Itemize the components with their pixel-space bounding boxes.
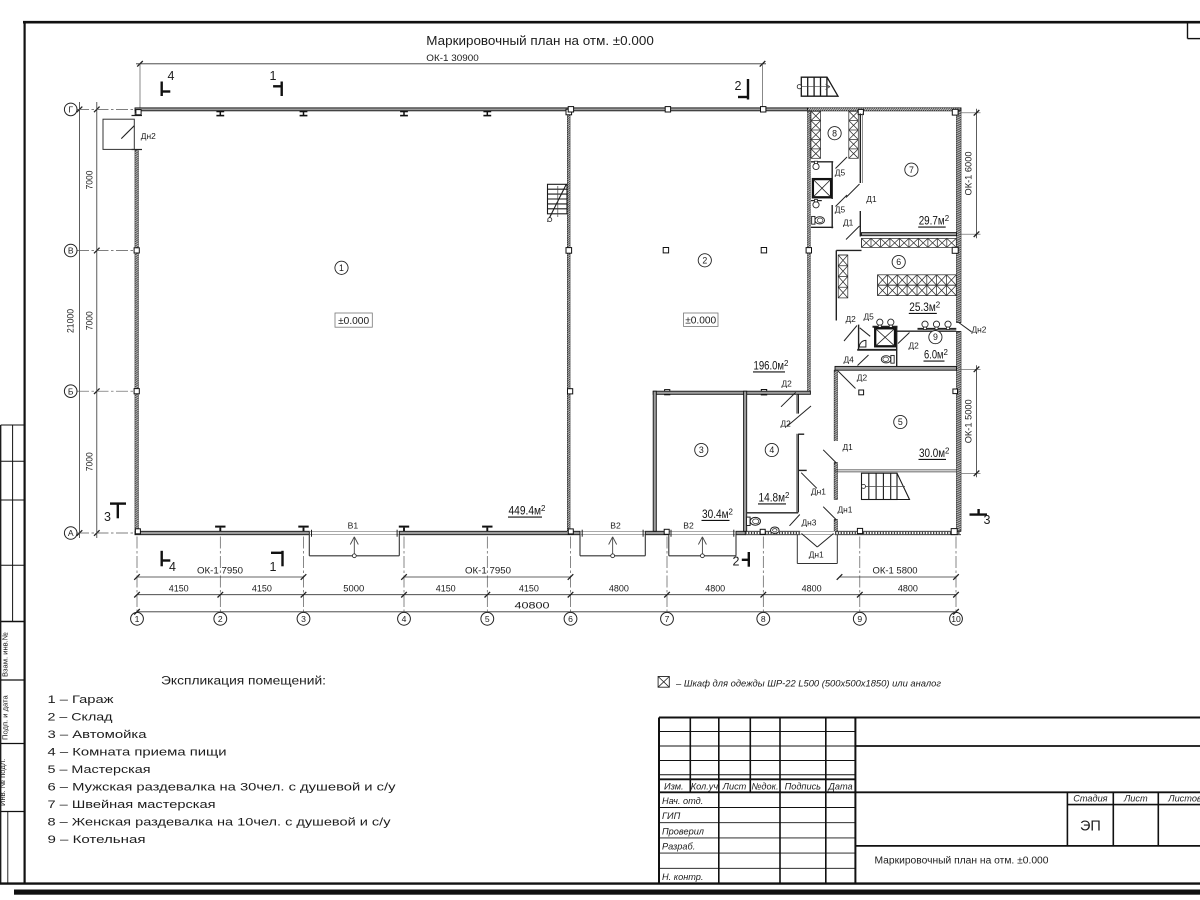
svg-text:2: 2: [702, 255, 707, 265]
svg-text:Дата: Дата: [827, 782, 852, 792]
svg-text:4: 4: [769, 445, 774, 455]
svg-text:В: В: [68, 246, 74, 256]
svg-text:Д2: Д2: [781, 419, 792, 429]
svg-text:7: 7: [909, 165, 914, 175]
svg-text:5: 5: [898, 417, 903, 427]
svg-text:ОК-1 30900: ОК-1 30900: [426, 53, 479, 63]
svg-text:Дн2: Дн2: [972, 325, 987, 335]
svg-text:Взам. инв.№: Взам. инв.№: [0, 632, 9, 677]
svg-text:2: 2: [218, 614, 223, 624]
svg-text:Лист: Лист: [1123, 794, 1148, 804]
svg-text:Разраб.: Разраб.: [662, 842, 695, 852]
svg-text:4800: 4800: [609, 584, 629, 595]
svg-text:30.0м: 30.0м: [919, 446, 945, 460]
svg-text:3: 3: [984, 513, 991, 527]
svg-text:Н. контр.: Н. контр.: [662, 872, 703, 882]
svg-text:2 – Склад: 2 – Склад: [48, 712, 114, 724]
svg-text:8: 8: [761, 614, 766, 624]
svg-text:ЭП: ЭП: [1080, 819, 1101, 835]
svg-text:8: 8: [832, 128, 837, 138]
svg-text:ОК-1 5000: ОК-1 5000: [964, 399, 974, 443]
svg-text:Д2: Д2: [782, 379, 793, 389]
svg-text:5 – Мастерская: 5 – Мастерская: [48, 764, 151, 776]
svg-text:9: 9: [933, 332, 938, 342]
svg-text:В1: В1: [348, 520, 359, 530]
svg-text:Листов: Листов: [1167, 794, 1200, 804]
svg-text:Проверил: Проверил: [662, 826, 704, 836]
svg-text:Маркировочный план на отм. ±0.: Маркировочный план на отм. ±0.000: [875, 856, 1049, 867]
svg-text:А: А: [68, 528, 74, 538]
svg-text:В2: В2: [683, 520, 694, 530]
svg-text:4150: 4150: [519, 584, 539, 595]
svg-text:25.3м: 25.3м: [909, 300, 936, 314]
svg-text:196.0м: 196.0м: [754, 358, 785, 372]
svg-text:8 – Женская раздевалка на 10че: 8 – Женская раздевалка на 10чел. с душев…: [48, 817, 392, 829]
svg-text:– Шкаф для одежды ШР-22 L500 (: – Шкаф для одежды ШР-22 L500 (500x500x18…: [675, 679, 941, 689]
svg-text:9: 9: [857, 614, 862, 624]
svg-text:ОК-1 7950: ОК-1 7950: [197, 566, 243, 576]
svg-text:7000: 7000: [85, 452, 95, 471]
svg-text:Дн3: Дн3: [802, 518, 817, 528]
svg-text:ОК-1 5800: ОК-1 5800: [873, 566, 918, 576]
svg-text:6 – Мужская раздевалка на 30че: 6 – Мужская раздевалка на 30чел. с душев…: [48, 782, 397, 794]
svg-text:4800: 4800: [898, 584, 918, 595]
svg-text:Д5: Д5: [835, 168, 846, 178]
svg-text:4: 4: [169, 560, 176, 574]
svg-text:2: 2: [784, 359, 788, 368]
svg-text:Подп. и дата: Подп. и дата: [0, 694, 9, 740]
svg-text:3 – Автомойка: 3 – Автомойка: [48, 729, 148, 741]
svg-text:4: 4: [402, 614, 407, 624]
svg-text:Д4: Д4: [844, 355, 855, 365]
svg-text:6.0м: 6.0м: [924, 348, 944, 362]
svg-text:7000: 7000: [85, 171, 95, 190]
svg-text:3: 3: [699, 445, 704, 455]
svg-text:2: 2: [945, 446, 949, 455]
svg-text:Д5: Д5: [864, 312, 875, 322]
svg-text:±0.000: ±0.000: [338, 316, 369, 327]
svg-text:29.7м: 29.7м: [919, 214, 945, 228]
svg-text:4150: 4150: [169, 584, 189, 595]
svg-text:1: 1: [339, 263, 344, 273]
svg-text:4150: 4150: [252, 584, 272, 595]
svg-text:1 – Гараж: 1 – Гараж: [48, 694, 115, 706]
svg-text:ГИП: ГИП: [662, 811, 681, 821]
svg-text:5000: 5000: [343, 584, 364, 595]
svg-text:2: 2: [735, 79, 742, 93]
svg-text:7000: 7000: [85, 311, 95, 330]
svg-text:Д1: Д1: [843, 218, 854, 228]
svg-text:Нач. отд.: Нач. отд.: [662, 796, 703, 806]
svg-text:2: 2: [733, 555, 740, 569]
svg-text:Инв. № подл.: Инв. № подл.: [0, 759, 7, 806]
svg-text:Д2: Д2: [857, 373, 868, 383]
svg-text:10: 10: [951, 614, 961, 624]
svg-text:449.4м: 449.4м: [509, 504, 542, 518]
svg-text:30.4м: 30.4м: [702, 507, 729, 521]
svg-text:Д1: Д1: [843, 442, 854, 452]
svg-text:7: 7: [665, 614, 670, 624]
svg-text:Д2: Д2: [909, 341, 920, 351]
svg-text:Д1: Д1: [866, 194, 877, 204]
svg-text:2: 2: [729, 507, 733, 516]
svg-text:4 – Комната приема пищи: 4 – Комната приема пищи: [48, 747, 227, 759]
svg-text:В2: В2: [610, 520, 621, 530]
svg-text:Маркировочный план на отм. ±0.: Маркировочный план на отм. ±0.000: [426, 33, 654, 48]
svg-text:±0.000: ±0.000: [685, 316, 716, 327]
svg-text:3: 3: [104, 510, 111, 524]
svg-text:4800: 4800: [802, 584, 822, 595]
svg-text:4150: 4150: [436, 584, 456, 595]
svg-text:14.8м: 14.8м: [759, 490, 786, 504]
svg-text:4800: 4800: [705, 584, 725, 595]
svg-text:7 – Швейная мастерская: 7 – Швейная мастерская: [48, 799, 216, 811]
svg-text:Экспликация помещений:: Экспликация помещений:: [161, 674, 326, 688]
svg-text:2: 2: [541, 504, 545, 513]
svg-text:2: 2: [785, 491, 789, 500]
svg-text:6: 6: [896, 257, 901, 267]
svg-text:9 – Котельная: 9 – Котельная: [48, 834, 146, 846]
svg-text:Д5: Д5: [835, 205, 846, 215]
svg-text:Б: Б: [68, 386, 74, 396]
svg-text:Изм.: Изм.: [664, 782, 684, 792]
svg-text:Подпись: Подпись: [785, 782, 822, 792]
svg-text:5: 5: [485, 614, 490, 624]
svg-text:40800: 40800: [515, 600, 550, 611]
svg-text:ОК-1 6000: ОК-1 6000: [964, 152, 974, 196]
svg-text:4: 4: [168, 69, 175, 83]
svg-text:Лист: Лист: [722, 782, 747, 792]
svg-text:2: 2: [936, 300, 940, 309]
svg-text:3: 3: [301, 614, 306, 624]
svg-text:Д2: Д2: [846, 314, 857, 324]
svg-text:№док.: №док.: [751, 782, 778, 792]
svg-text:1: 1: [135, 614, 140, 624]
svg-text:Стадия: Стадия: [1073, 794, 1107, 804]
svg-text:Кол.уч: Кол.уч: [691, 782, 719, 792]
svg-text:1: 1: [270, 560, 277, 574]
svg-text:Г: Г: [68, 105, 73, 115]
svg-text:2: 2: [945, 214, 949, 223]
svg-text:Дн1: Дн1: [838, 505, 853, 515]
svg-text:1: 1: [270, 69, 277, 83]
svg-text:6: 6: [568, 614, 573, 624]
svg-text:ОК-1 7950: ОК-1 7950: [465, 566, 511, 576]
svg-text:21000: 21000: [66, 309, 76, 333]
svg-text:Дн1: Дн1: [809, 550, 824, 560]
svg-text:Дн2: Дн2: [141, 131, 156, 141]
svg-text:Дн1: Дн1: [811, 487, 826, 497]
svg-text:2: 2: [944, 348, 948, 357]
